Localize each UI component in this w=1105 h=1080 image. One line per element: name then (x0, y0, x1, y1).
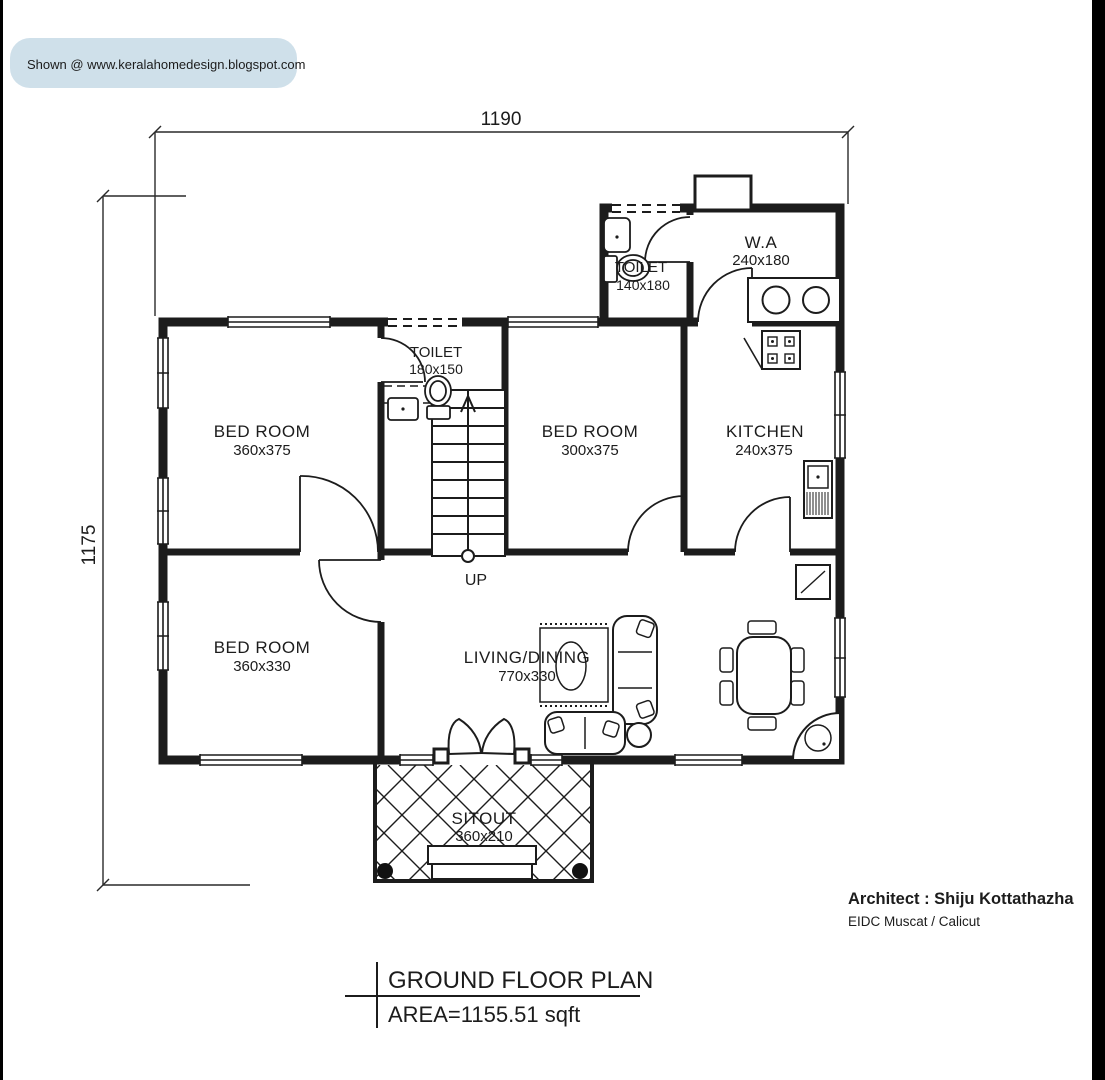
credits: Architect : Shiju Kottathazha EIDC Musca… (848, 890, 1074, 929)
dimension-width-label: 1190 (481, 109, 522, 130)
room-size-sitout: 360x210 (455, 828, 513, 845)
bedroom2-door (628, 496, 684, 552)
room-label-bedroom-1: BED ROOM (214, 422, 311, 441)
site-badge: Shown @ www.keralahomedesign.blogspot.co… (10, 38, 305, 88)
chimney (695, 176, 751, 210)
kitchen-fixtures (744, 331, 832, 599)
dining-set (720, 621, 804, 730)
sofa-long (613, 616, 657, 724)
work-area-door (698, 268, 752, 322)
floor-plan-drawing: Shown @ www.keralahomedesign.blogspot.co… (0, 0, 1105, 1080)
step (432, 864, 532, 879)
floor-plan-page: Shown @ www.keralahomedesign.blogspot.co… (0, 0, 1105, 1080)
room-size-toilet-mid: 180x150 (409, 361, 463, 377)
sofa-small (545, 712, 625, 754)
room-size-work-area: 240x180 (732, 252, 790, 269)
step (428, 846, 536, 864)
room-size-bedroom-1: 360x375 (233, 442, 291, 459)
title-block: GROUND FLOOR PLAN AREA=1155.51 sqft (345, 962, 653, 1028)
room-size-living-dining: 770x330 (498, 668, 556, 685)
doors (300, 217, 790, 622)
corner-basin (793, 713, 840, 760)
dining-table (737, 637, 791, 714)
room-label-bedroom-3: BED ROOM (214, 638, 311, 657)
side-table (627, 723, 651, 747)
column (572, 863, 588, 879)
entrance-double-door (434, 719, 529, 763)
plan-title: GROUND FLOOR PLAN (388, 967, 653, 994)
room-label-bedroom-2: BED ROOM (542, 422, 639, 441)
right-border (1092, 0, 1105, 1080)
toilet-upper-door (645, 217, 690, 262)
site-badge-text: Shown @ www.keralahomedesign.blogspot.co… (27, 57, 305, 72)
room-size-kitchen: 240x375 (735, 442, 793, 459)
living-dining-furniture (540, 616, 840, 760)
room-label-living-dining: LIVING/DINING (464, 648, 590, 667)
room-size-bedroom-3: 360x330 (233, 658, 291, 675)
bedroom1-door (300, 476, 378, 552)
work-area-counter (748, 278, 840, 322)
kitchen-door (735, 497, 790, 552)
washbasin (604, 218, 630, 252)
room-label-toilet-upper: TOILET (615, 259, 667, 276)
bedroom3-door (319, 560, 381, 622)
room-label-sitout: SITOUT (451, 809, 516, 828)
room-label-toilet-mid: TOILET (410, 344, 462, 361)
plan-area: AREA=1155.51 sqft (388, 1002, 580, 1027)
stairs-up-label: UP (465, 572, 487, 589)
architect-name: Architect : Shiju Kottathazha (848, 890, 1074, 908)
room-label-work-area: W.A (745, 233, 778, 252)
left-border (0, 0, 3, 1080)
dimension-height-label: 1175 (79, 525, 100, 566)
architect-firm: EIDC Muscat / Calicut (848, 914, 980, 929)
room-size-bedroom-2: 300x375 (561, 442, 619, 459)
room-size-toilet-upper: 140x180 (616, 277, 670, 293)
room-label-kitchen: KITCHEN (726, 422, 804, 441)
column (377, 863, 393, 879)
